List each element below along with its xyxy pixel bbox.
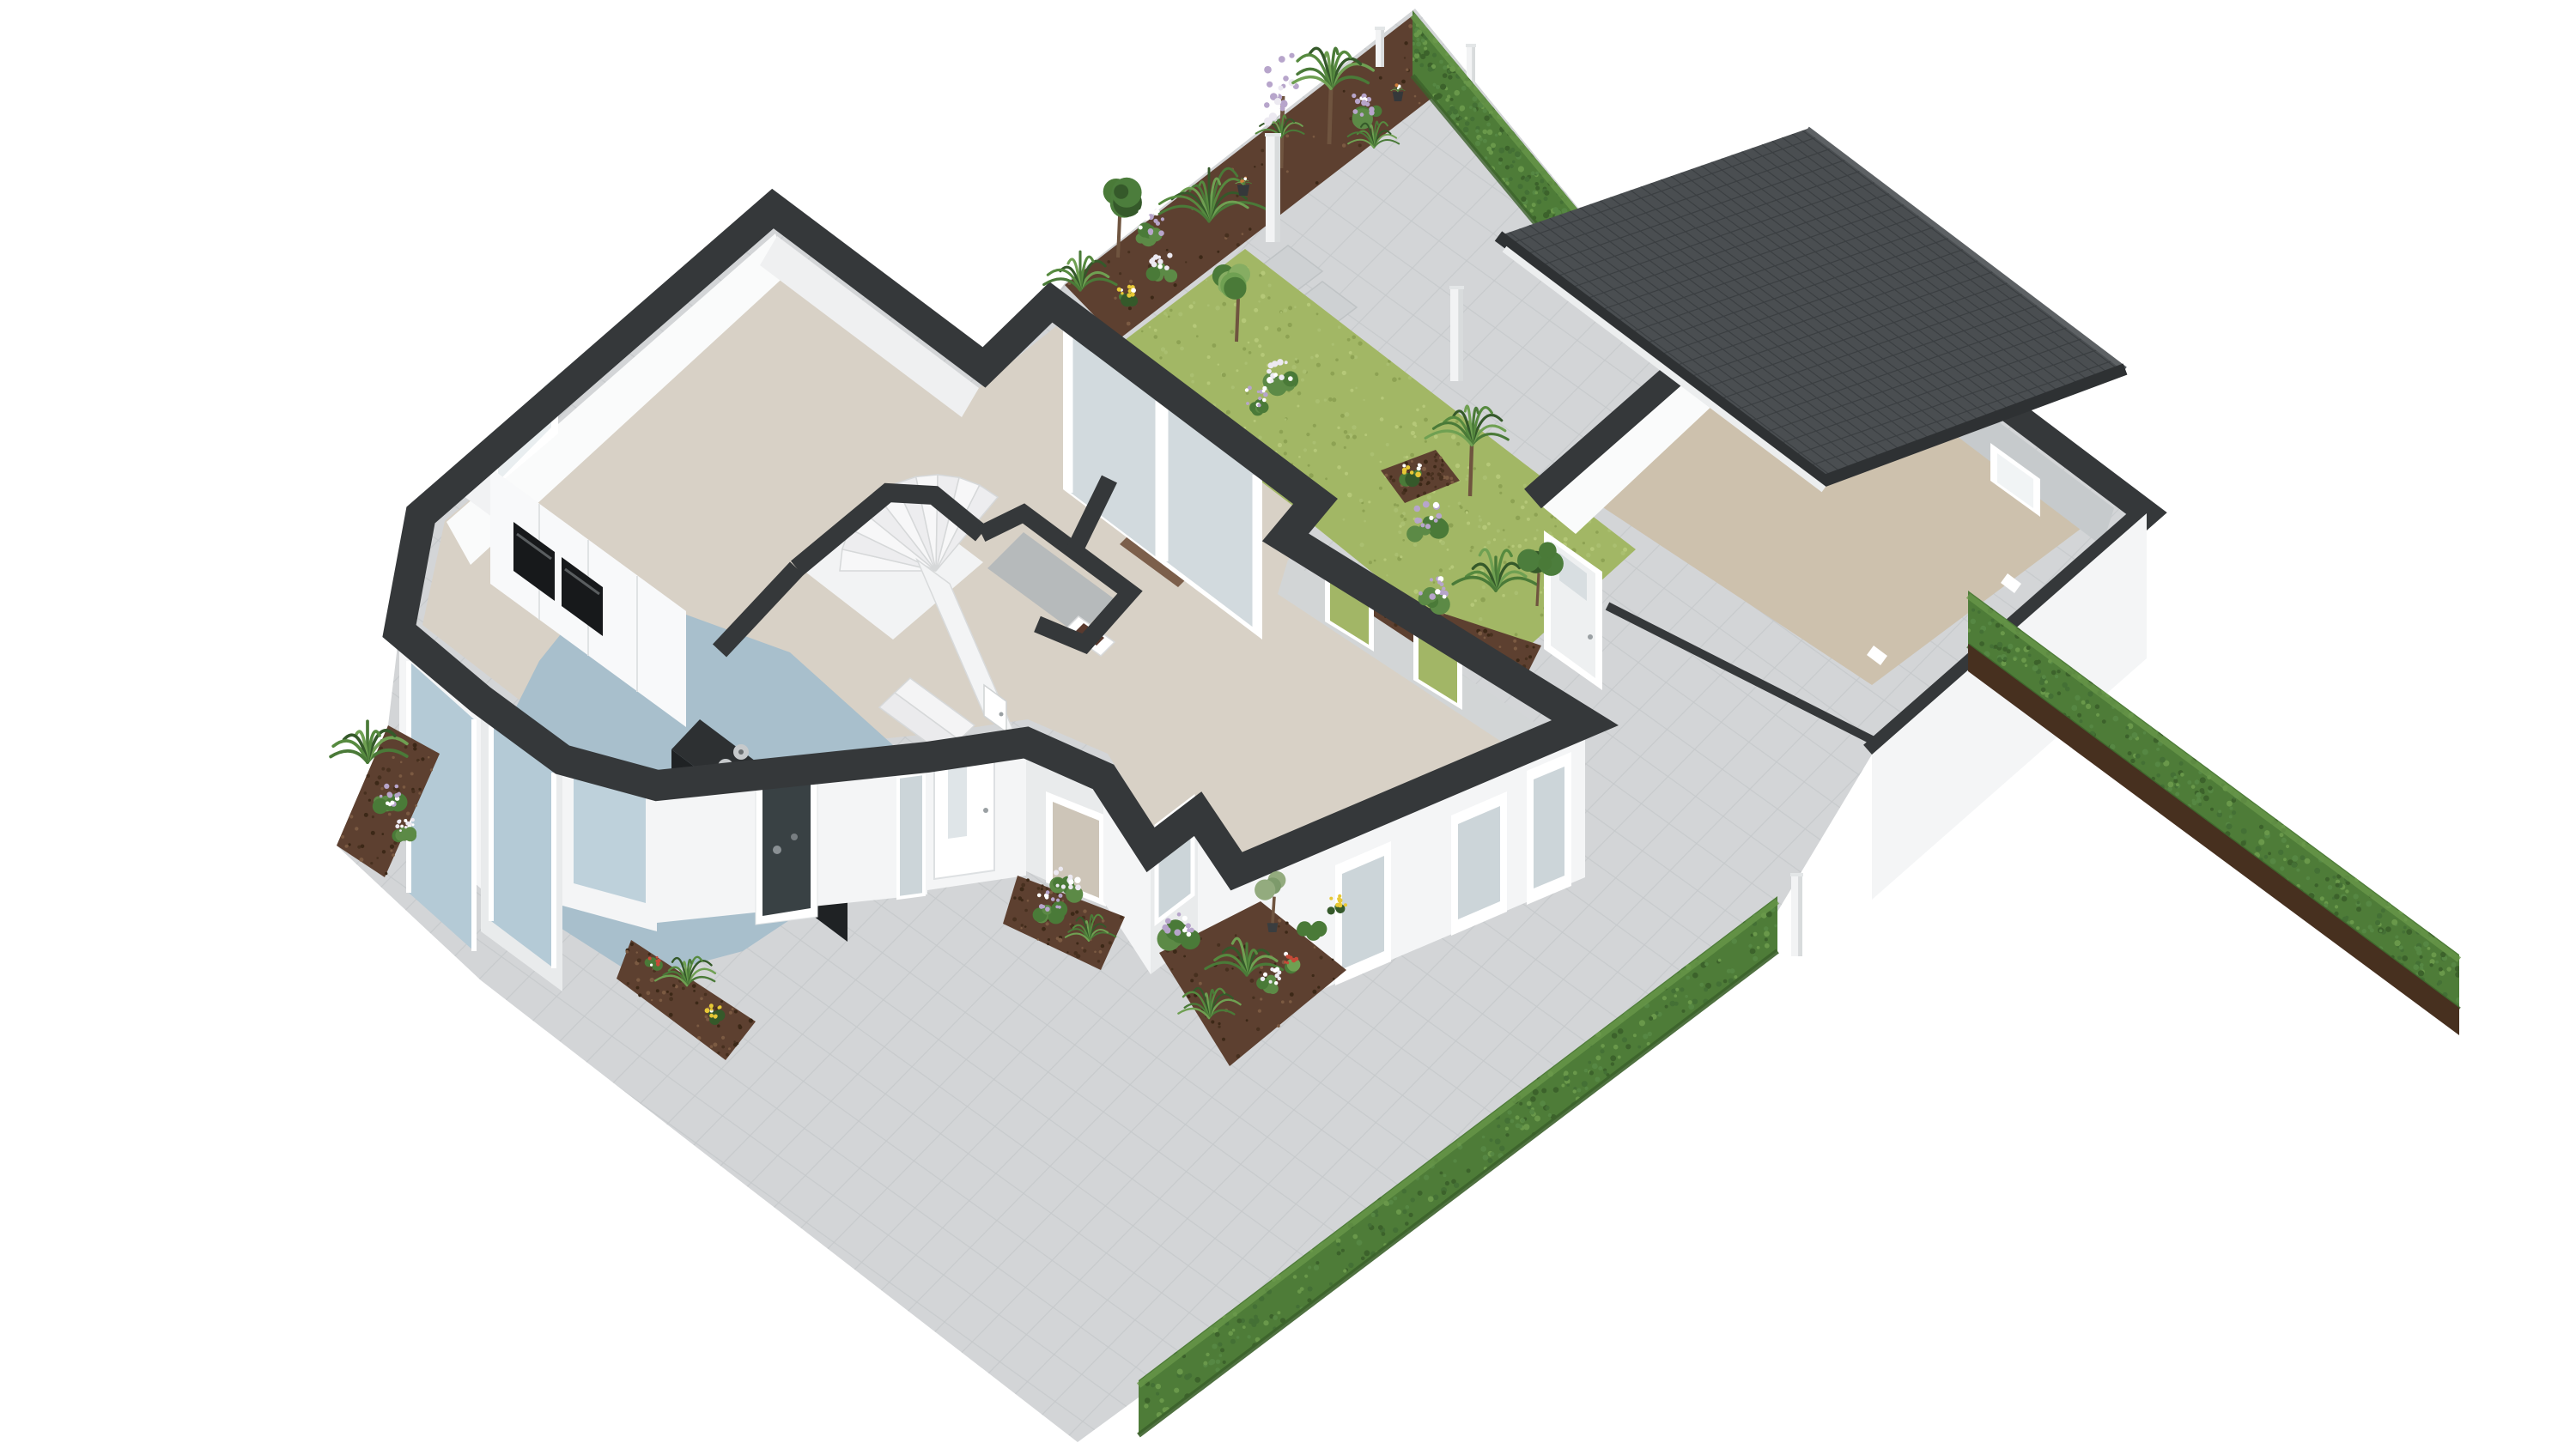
hedge-east-boundary (1968, 591, 2459, 1009)
soil-east-boundary (1968, 644, 2459, 1035)
stair-step (896, 476, 936, 571)
se-window (1451, 791, 1507, 936)
garage-inner-wall-west (1537, 262, 1829, 534)
cooktop (718, 744, 787, 797)
stair-step (936, 477, 980, 571)
stair-step (849, 511, 936, 572)
paving-surface (337, 9, 2147, 1442)
garage (1460, 0, 2147, 900)
kitchen-tall-cabinets (464, 468, 686, 727)
garage-wall-tops (1533, 258, 2147, 755)
stair-step (842, 529, 936, 571)
lawn-texture (1122, 267, 1627, 672)
winder-stairs (840, 475, 998, 755)
house (399, 209, 1585, 1026)
hall-front-window (1046, 791, 1106, 906)
door-sidelight (898, 773, 924, 898)
floor-living-hall (422, 240, 1556, 876)
living-garden-window (1413, 630, 1462, 710)
built-in-oven (562, 557, 603, 636)
bed-door-right (1003, 876, 1125, 970)
facade-flower-beds (337, 725, 1346, 1066)
facade-bay-window (399, 631, 657, 991)
ground-paving (301, 0, 2190, 1449)
kitchen-counter (671, 719, 876, 942)
hedge-shadow (1139, 951, 1777, 1435)
bed-west-corner (337, 725, 440, 877)
hall-door (984, 685, 1006, 732)
garden-lawn (1103, 249, 1636, 674)
doormat (1120, 522, 1200, 587)
floorplan-3d-render: 3D isometric floor plan render — house w… (0, 0, 2576, 1449)
se-corner-tall-window (1527, 752, 1571, 905)
garage-door-stop (2001, 573, 2021, 593)
garage-roof (1460, 0, 2147, 725)
stair-step (936, 485, 998, 571)
stair-step (936, 475, 959, 571)
bed-passage (1355, 591, 1541, 685)
garage-open-sill (1607, 606, 1872, 740)
lamp-post (1375, 27, 1385, 67)
garden-plants (331, 48, 1564, 1025)
wall-inner-northeast-living (1278, 560, 1556, 771)
lamp-post (1265, 133, 1281, 242)
bed-front-left (617, 940, 756, 1060)
garage-window (1990, 443, 2040, 517)
wall-inner-north (760, 236, 979, 417)
garden-flower-beds (1065, 14, 1541, 685)
garage-floor (1578, 283, 2111, 685)
stair-step (916, 475, 938, 571)
paving-tile-grid (301, 0, 2190, 1449)
stepping-stone (1238, 246, 1322, 309)
kitchen-front-window (756, 767, 817, 925)
wood-deck (1625, 226, 1722, 288)
garage-inner-wall-northeast (1805, 283, 2114, 546)
hedge-tall-northeast (1413, 10, 1637, 345)
facade-kitchen-front (657, 757, 927, 925)
hedge-driveway-south (1139, 896, 1777, 1435)
lamp-post (1790, 873, 1803, 956)
stair-spine-wall (917, 560, 1017, 738)
sliding-glass-doors (1063, 324, 1262, 640)
floor-kitchen (481, 584, 893, 979)
facade-entrance (927, 743, 1026, 890)
stair-step (879, 693, 959, 755)
boundary-hedges (1139, 591, 2462, 1435)
floor-wc (987, 532, 1115, 635)
stair-step (877, 484, 936, 572)
stepping-stone (1273, 282, 1357, 345)
garden-lamp-posts (1265, 133, 1803, 956)
tall-hedge-northeast (1411, 10, 1637, 345)
interior-wall-tops (720, 479, 1130, 651)
facade-southeast (1236, 723, 1585, 1026)
garage-side-door (1544, 530, 1602, 690)
stair-step (840, 549, 936, 571)
roof-tile-lines (1460, 0, 2147, 725)
staircase-block (799, 475, 1017, 755)
stepping-stone (1189, 286, 1243, 327)
wall-inner-northwest (447, 233, 788, 565)
fence-posts-behind-hedge (1375, 27, 1476, 84)
kitchen-window-inner (491, 371, 558, 490)
stair-step (861, 495, 936, 571)
living-garden-window (1325, 572, 1374, 652)
exterior-wall-tops (399, 209, 1585, 871)
bed-lawn-end (1381, 450, 1460, 503)
stepping-stones (1189, 246, 1357, 345)
lamp-post (1449, 286, 1464, 381)
bed-front-living (1159, 901, 1346, 1066)
built-in-oven (513, 522, 555, 601)
garage-wall-southeast-face (1872, 513, 2147, 900)
stair-step (895, 678, 975, 740)
se-window (1335, 841, 1391, 985)
lamp-post (1466, 44, 1476, 84)
wc-shaft (1065, 616, 1115, 656)
bed-northwest-border (1065, 14, 1463, 340)
front-door (934, 745, 994, 879)
living-bay-window (1157, 798, 1193, 922)
facade-living-front (1026, 743, 1236, 996)
garage-door-stop (1867, 646, 1887, 665)
